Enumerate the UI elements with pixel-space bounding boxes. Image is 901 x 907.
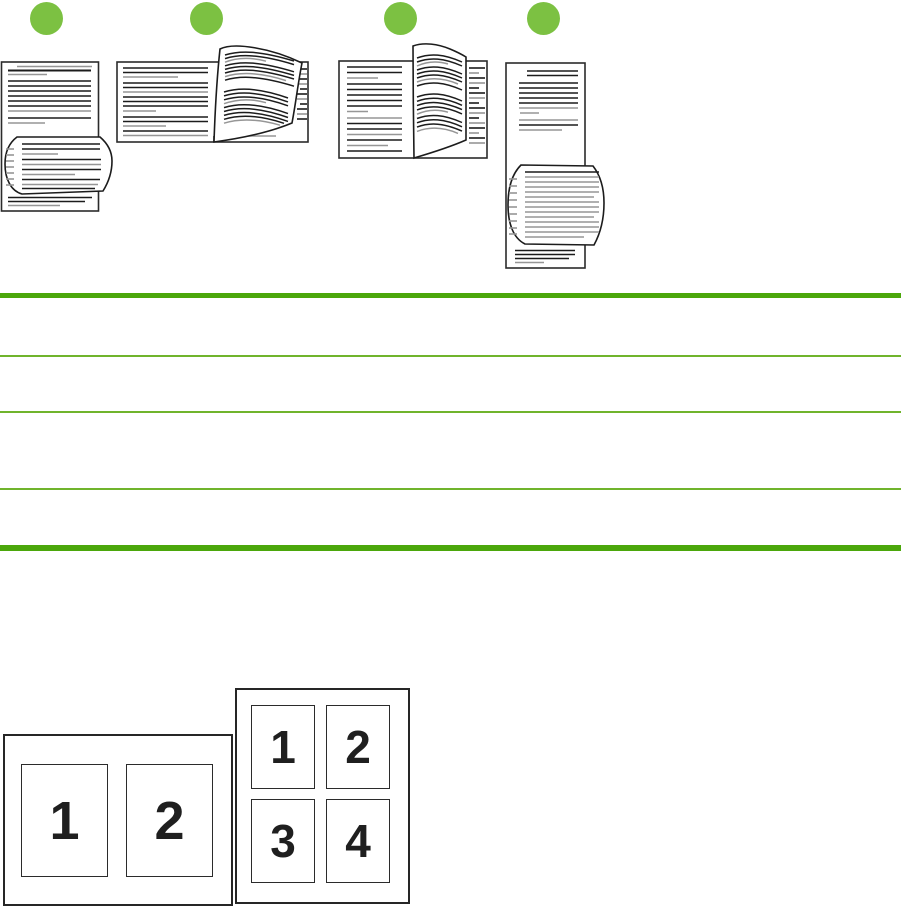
step-marker-4-icon [527, 2, 560, 35]
nup-page-number: 2 [154, 794, 184, 848]
nup-page-number: 3 [270, 818, 296, 864]
nup-page-number: 2 [345, 724, 371, 770]
nup-page-box-1: 1 [21, 764, 108, 877]
nup-page-box-2: 2 [126, 764, 213, 877]
binding-option-1-illustration [0, 60, 115, 213]
binding-option-3-illustration [338, 43, 489, 160]
nup-2-per-sheet-diagram: 1 2 [3, 734, 233, 906]
nup-page-number: 1 [270, 724, 296, 770]
nup-page-box-1: 1 [251, 705, 315, 789]
nup-page-box-2: 2 [326, 705, 390, 789]
binding-option-4-illustration [504, 62, 607, 270]
step-marker-1-icon [30, 2, 63, 35]
table-rule-bottom [0, 545, 901, 551]
nup-4-per-sheet-diagram: 1 2 3 4 [235, 688, 410, 904]
step-marker-2-icon [190, 2, 223, 35]
binding-option-2-illustration [116, 42, 310, 143]
nup-page-box-3: 3 [251, 799, 315, 883]
table-row [0, 413, 901, 488]
step-marker-3-icon [384, 2, 417, 35]
nup-page-box-4: 4 [326, 799, 390, 883]
table-row [0, 298, 901, 355]
nup-page-number: 4 [345, 818, 371, 864]
table-row [0, 357, 901, 411]
nup-page-number: 1 [49, 794, 79, 848]
manual-page: 1 2 1 2 3 4 [0, 0, 901, 907]
table-row [0, 490, 901, 545]
